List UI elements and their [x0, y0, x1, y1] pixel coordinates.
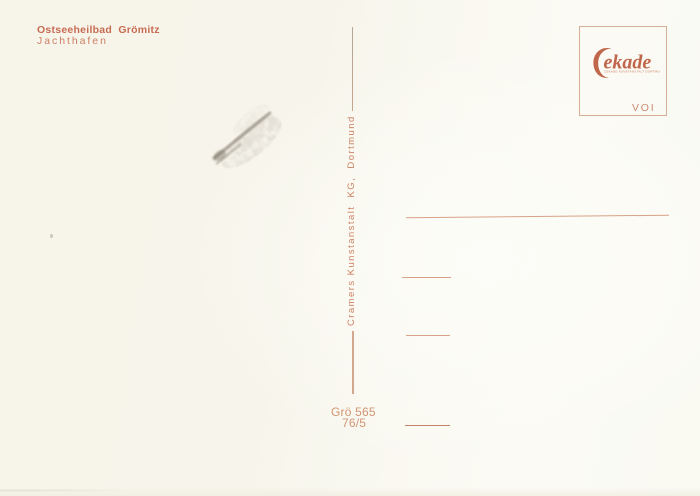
svg-text:CEKADE·KUNSTANSTALT·DORTMUND·K: CEKADE·KUNSTANSTALT·DORTMUND·KG [604, 70, 660, 74]
